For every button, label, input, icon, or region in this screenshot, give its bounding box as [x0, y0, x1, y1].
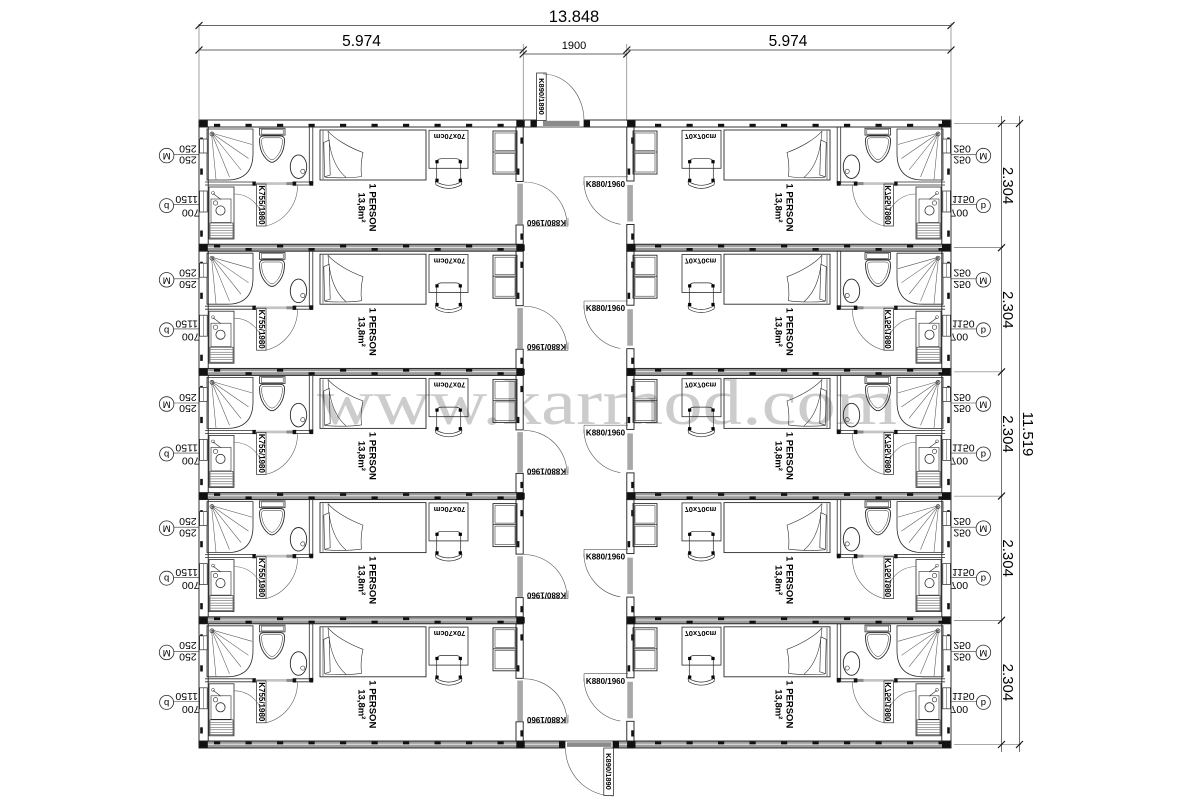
svg-text:1 PERSON: 1 PERSON: [367, 432, 378, 480]
svg-text:13,8m²: 13,8m²: [773, 565, 784, 595]
svg-text:13,8m²: 13,8m²: [356, 441, 367, 471]
svg-text:13,8m²: 13,8m²: [773, 192, 784, 222]
svg-text:K880/1960: K880/1960: [586, 304, 626, 313]
svg-text:13.848: 13.848: [549, 8, 599, 26]
svg-text:K880/1960: K880/1960: [586, 180, 626, 189]
svg-text:1 PERSON: 1 PERSON: [367, 680, 378, 728]
svg-text:K880/1960: K880/1960: [526, 715, 566, 724]
svg-text:2.304: 2.304: [999, 291, 1016, 329]
svg-text:2.304: 2.304: [999, 664, 1016, 702]
svg-text:1 PERSON: 1 PERSON: [367, 308, 378, 356]
svg-text:K880/1960: K880/1960: [586, 677, 626, 686]
svg-text:K880/1960: K880/1960: [586, 428, 626, 437]
svg-text:K890/1890: K890/1890: [537, 78, 546, 115]
svg-text:1 PERSON: 1 PERSON: [367, 183, 378, 231]
svg-text:K880/1960: K880/1960: [586, 553, 626, 562]
svg-text:13,8m²: 13,8m²: [356, 192, 367, 222]
svg-text:13,8m²: 13,8m²: [773, 441, 784, 471]
svg-text:13,8m²: 13,8m²: [356, 317, 367, 347]
svg-text:1 PERSON: 1 PERSON: [784, 432, 795, 480]
svg-text:K880/1960: K880/1960: [526, 591, 566, 600]
svg-text:K890/1890: K890/1890: [604, 753, 613, 790]
svg-text:1 PERSON: 1 PERSON: [784, 183, 795, 231]
svg-text:5.974: 5.974: [769, 33, 808, 50]
svg-text:1 PERSON: 1 PERSON: [784, 680, 795, 728]
svg-text:13,8m²: 13,8m²: [773, 317, 784, 347]
svg-text:1 PERSON: 1 PERSON: [784, 556, 795, 604]
svg-text:11.519: 11.519: [1019, 412, 1036, 457]
svg-text:5.974: 5.974: [342, 33, 381, 50]
svg-text:1 PERSON: 1 PERSON: [367, 556, 378, 604]
svg-text:1900: 1900: [562, 40, 586, 52]
svg-text:K880/1960: K880/1960: [526, 466, 566, 475]
svg-text:13,8m²: 13,8m²: [773, 689, 784, 719]
svg-text:2.304: 2.304: [999, 415, 1016, 453]
svg-text:13,8m²: 13,8m²: [356, 565, 367, 595]
svg-text:K880/1960: K880/1960: [526, 342, 566, 351]
svg-text:13,8m²: 13,8m²: [356, 689, 367, 719]
svg-text:1 PERSON: 1 PERSON: [784, 308, 795, 356]
svg-text:2.304: 2.304: [999, 539, 1016, 577]
svg-text:K880/1960: K880/1960: [526, 218, 566, 227]
svg-text:2.304: 2.304: [999, 167, 1016, 205]
